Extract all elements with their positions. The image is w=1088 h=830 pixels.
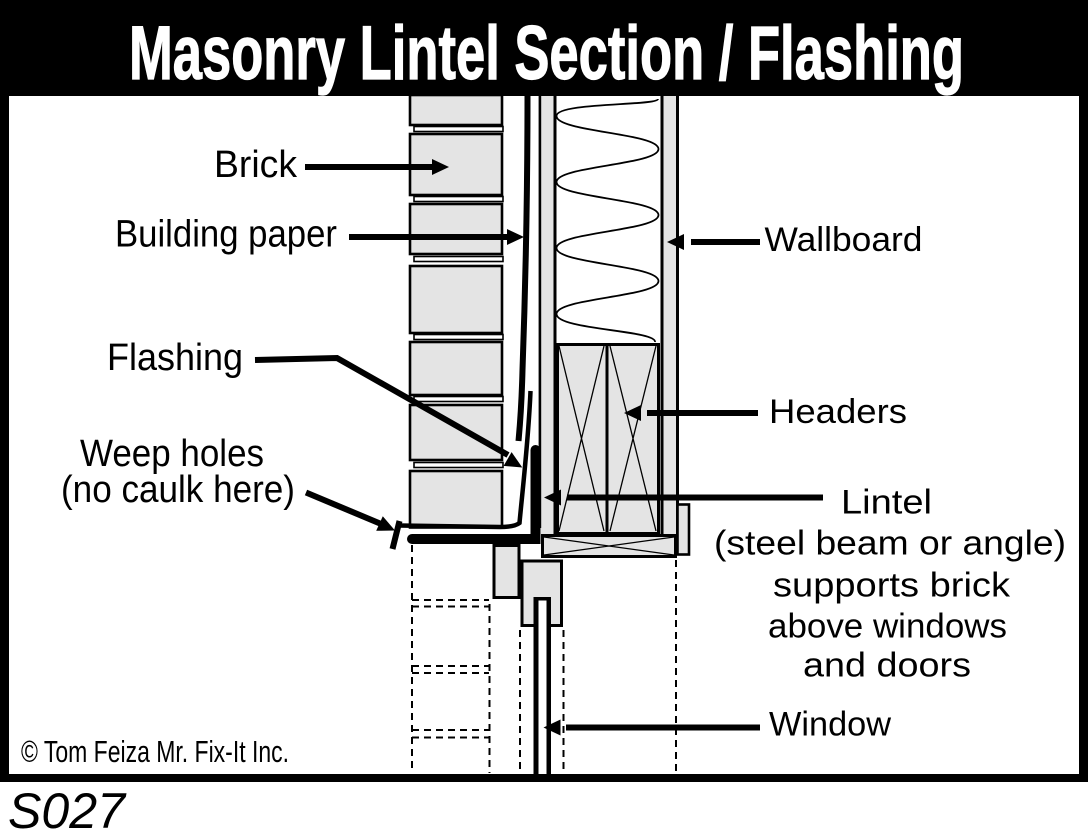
svg-text:Masonry Lintel Section / Flash: Masonry Lintel Section / Flashing [129, 11, 964, 96]
svg-text:Lintel: Lintel [841, 484, 932, 522]
svg-text:© Tom Feiza Mr. Fix-It Inc.: © Tom Feiza Mr. Fix-It Inc. [21, 734, 289, 769]
svg-text:Wallboard: Wallboard [765, 221, 923, 259]
svg-text:Building paper: Building paper [115, 214, 337, 256]
svg-text:S027: S027 [8, 783, 127, 830]
svg-text:and doors: and doors [803, 647, 971, 685]
svg-text:(no caulk here): (no caulk here) [61, 469, 295, 511]
svg-text:Headers: Headers [769, 393, 907, 431]
svg-text:Flashing: Flashing [107, 337, 243, 379]
svg-text:Brick: Brick [214, 144, 298, 186]
svg-text:(steel beam or angle): (steel beam or angle) [714, 525, 1066, 563]
svg-text:Window: Window [769, 706, 891, 744]
svg-text:above windows: above windows [768, 608, 1007, 646]
svg-text:supports brick: supports brick [773, 567, 1011, 605]
